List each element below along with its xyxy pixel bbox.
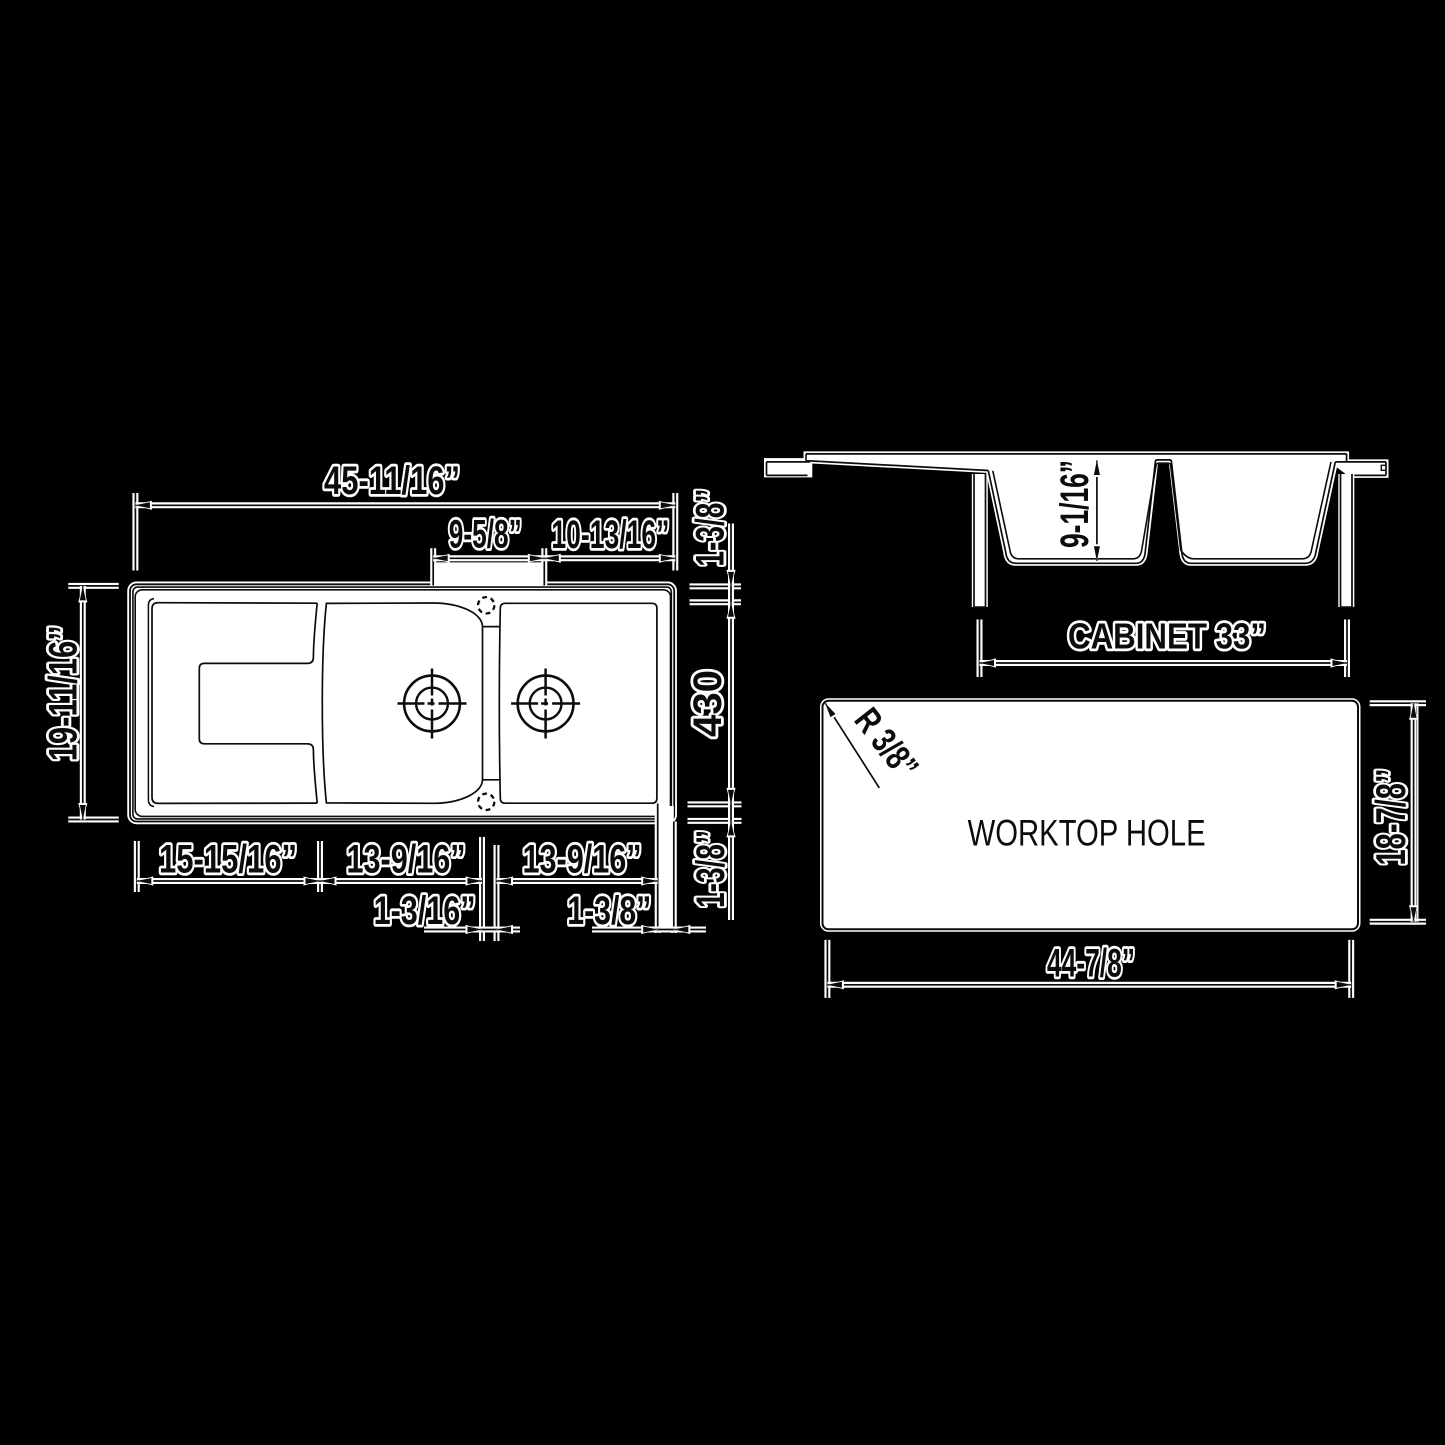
svg-text:9-1/16”: 9-1/16” (1053, 460, 1097, 548)
svg-text:45-11/16”: 45-11/16” (324, 459, 460, 503)
svg-text:430: 430 (686, 670, 730, 737)
svg-text:44-7/8”: 44-7/8” (1047, 942, 1135, 986)
svg-text:1-3/8”: 1-3/8” (567, 889, 651, 933)
svg-text:18-7/8”: 18-7/8” (1367, 769, 1414, 866)
svg-text:CABINET 33”: CABINET 33” (1068, 616, 1266, 657)
svg-text:13-9/16”: 13-9/16” (347, 838, 466, 882)
svg-text:9-5/8”: 9-5/8” (449, 513, 522, 557)
svg-text:19-11/16”: 19-11/16” (42, 625, 86, 761)
svg-text:1-3/16”: 1-3/16” (374, 889, 476, 933)
svg-text:WORKTOP HOLE: WORKTOP HOLE (968, 812, 1206, 854)
svg-text:13-9/16”: 13-9/16” (523, 838, 642, 882)
svg-text:1-3/8”: 1-3/8” (689, 830, 733, 908)
svg-text:10-13/16”: 10-13/16” (551, 513, 669, 557)
svg-text:15-15/16”: 15-15/16” (159, 838, 297, 882)
svg-text:1-3/8”: 1-3/8” (689, 489, 733, 567)
